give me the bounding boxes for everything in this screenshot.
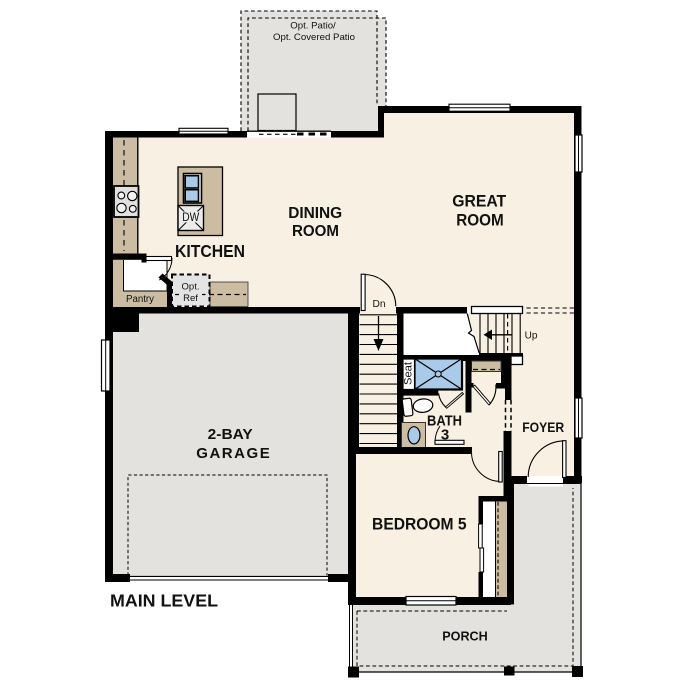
svg-text:Opt.: Opt. bbox=[182, 282, 200, 293]
svg-text:Seat: Seat bbox=[403, 362, 415, 385]
svg-text:PORCH: PORCH bbox=[442, 629, 488, 644]
svg-text:3: 3 bbox=[441, 427, 449, 444]
svg-text:Up: Up bbox=[525, 331, 538, 342]
svg-text:Pantry: Pantry bbox=[126, 294, 154, 305]
svg-text:FOYER: FOYER bbox=[522, 420, 564, 435]
svg-text:KITCHEN: KITCHEN bbox=[175, 241, 245, 261]
svg-text:2-BAY: 2-BAY bbox=[208, 426, 253, 443]
svg-text:ROOM: ROOM bbox=[292, 223, 339, 240]
svg-text:DINING: DINING bbox=[288, 205, 342, 222]
svg-text:DW: DW bbox=[182, 212, 199, 224]
svg-text:BEDROOM 5: BEDROOM 5 bbox=[372, 516, 467, 534]
svg-text:Opt. Patio/: Opt. Patio/ bbox=[290, 21, 336, 31]
svg-text:Dn: Dn bbox=[373, 299, 386, 310]
svg-text:ROOM: ROOM bbox=[456, 211, 504, 230]
svg-text:Opt. Covered Patio: Opt. Covered Patio bbox=[273, 32, 355, 42]
svg-text:MAIN LEVEL: MAIN LEVEL bbox=[110, 590, 218, 610]
svg-text:Ref: Ref bbox=[183, 293, 198, 304]
svg-text:GREAT: GREAT bbox=[452, 191, 507, 210]
